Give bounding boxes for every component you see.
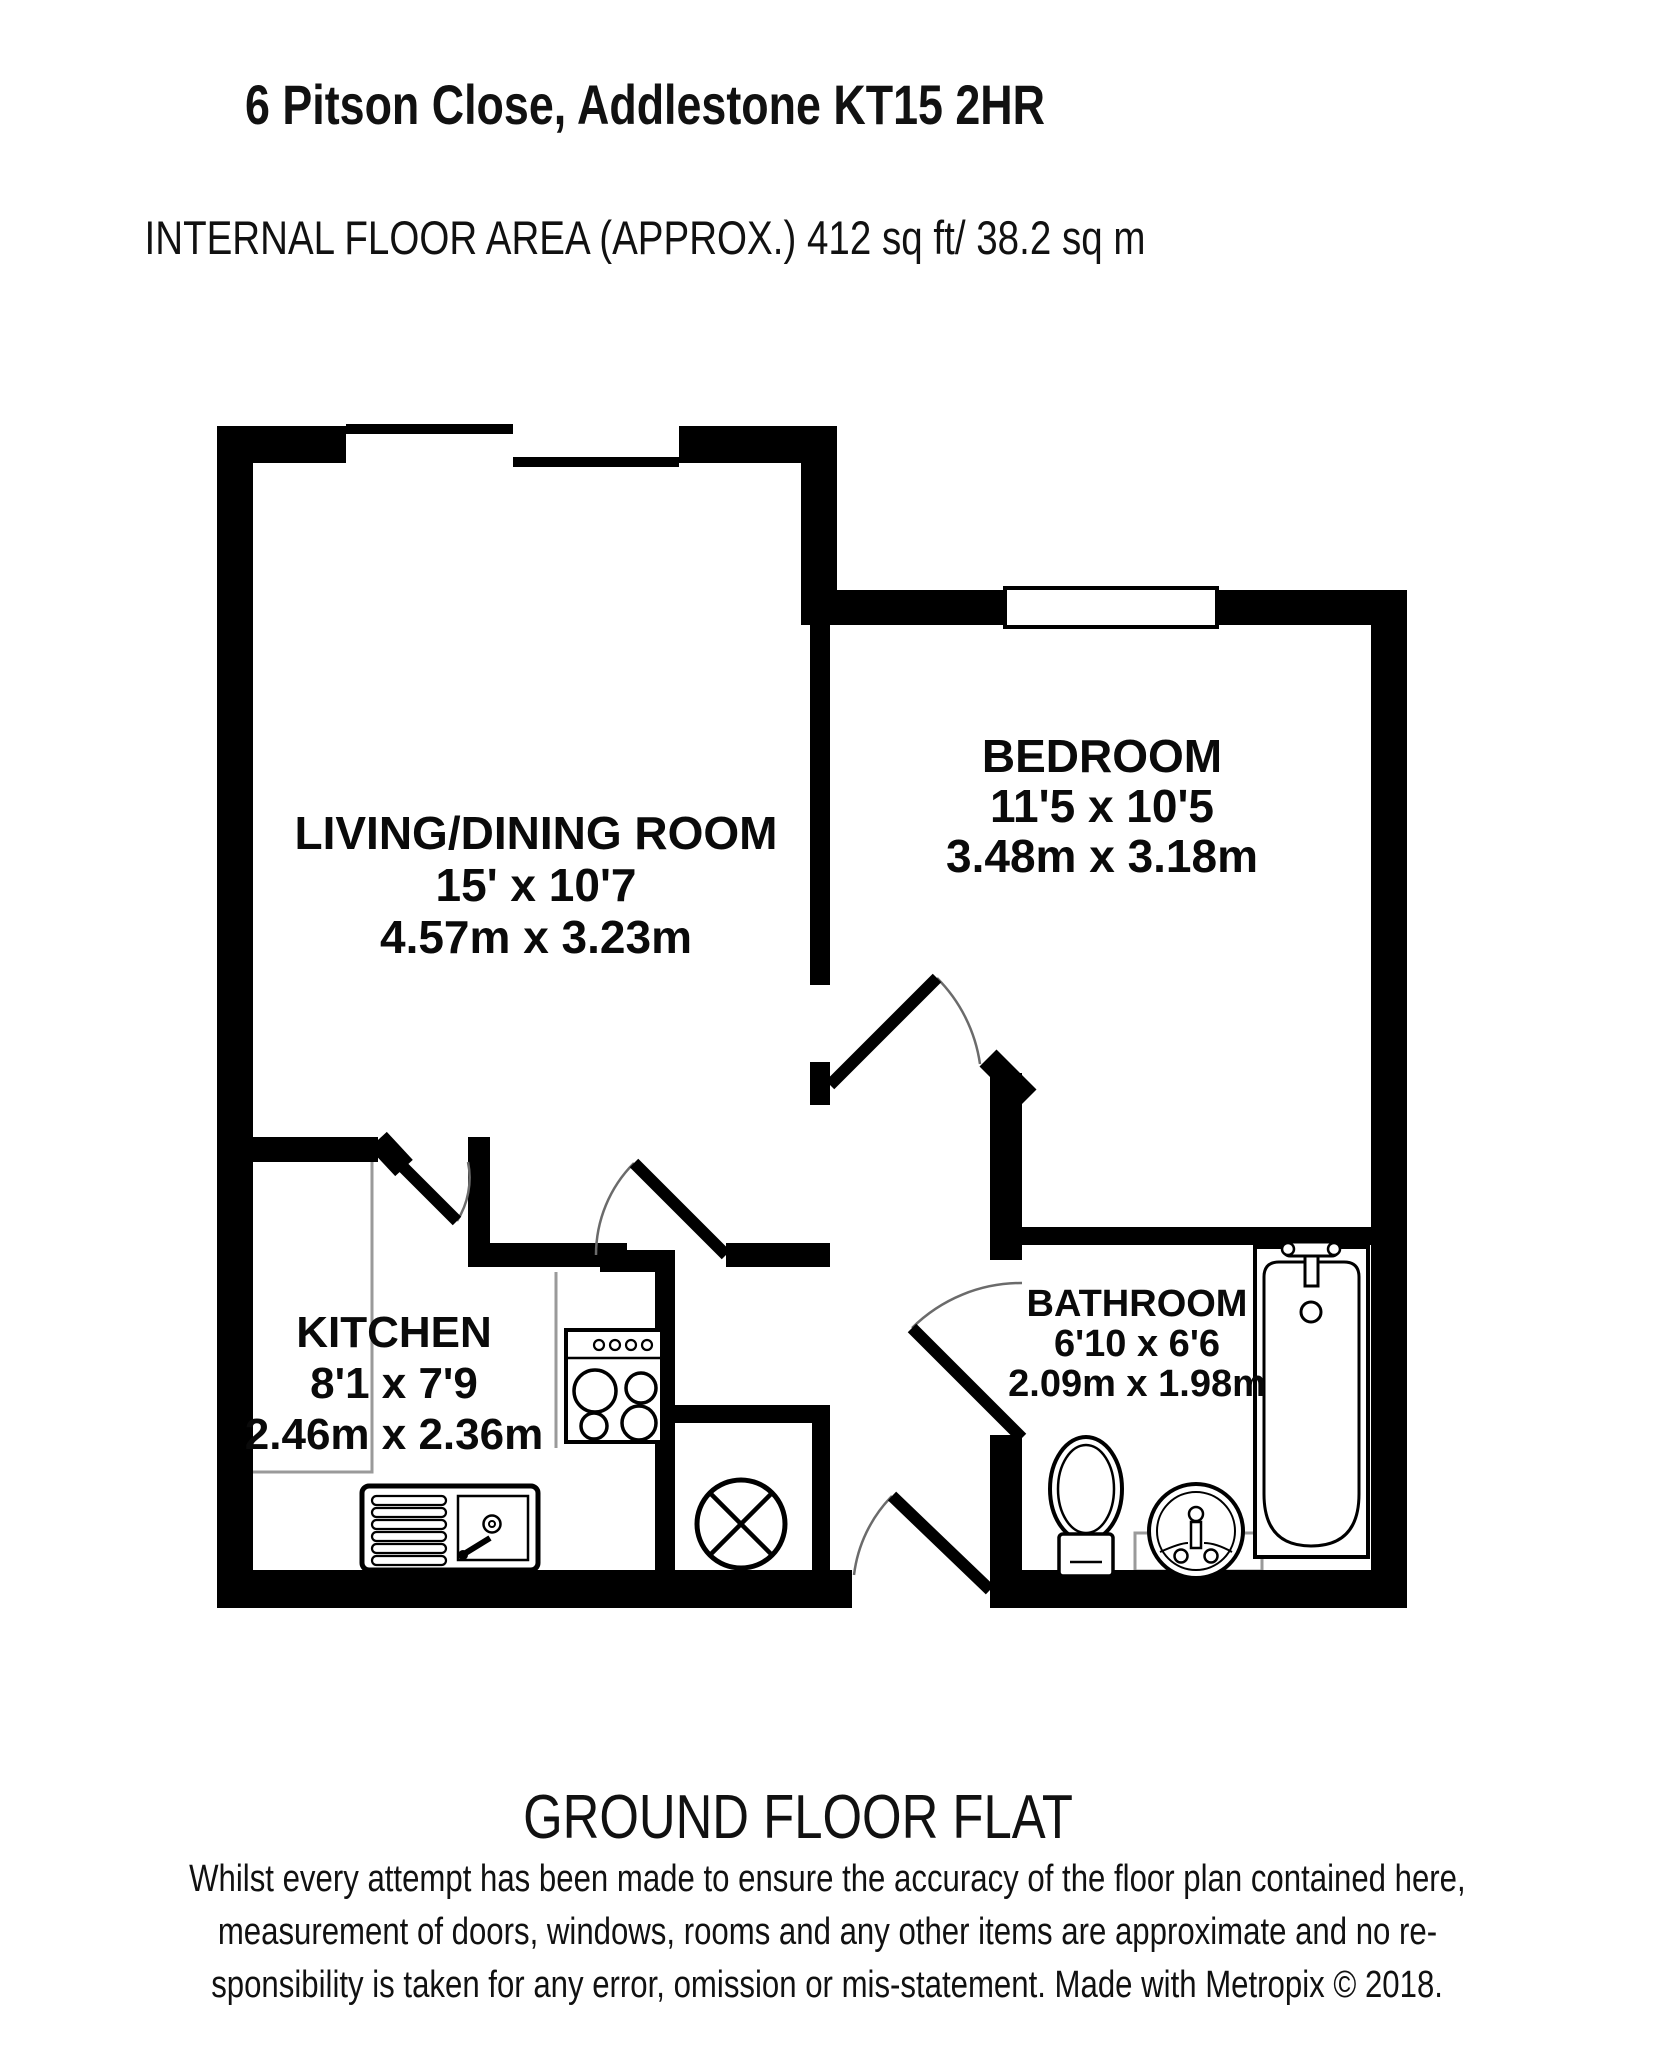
wall xyxy=(726,1243,830,1267)
door-leaf xyxy=(400,1164,457,1221)
wall xyxy=(217,1570,852,1608)
bathtub xyxy=(1255,1247,1368,1557)
room-dims-imperial: 8'1 x 7'9 xyxy=(245,1358,543,1409)
basin-tap xyxy=(1175,1550,1188,1563)
room-dims-imperial: 15' x 10'7 xyxy=(295,859,778,911)
room-dims-metric: 4.57m x 3.23m xyxy=(295,911,778,963)
door-leaf xyxy=(634,1163,726,1255)
room-name: LIVING/DINING ROOM xyxy=(295,807,778,859)
wall xyxy=(217,426,346,463)
room-label-bathroom: BATHROOM 6'10 x 6'6 2.09m x 1.98m xyxy=(1008,1284,1266,1404)
room-dims-metric: 3.48m x 3.18m xyxy=(946,831,1258,881)
room-name: BEDROOM xyxy=(946,731,1258,781)
wall xyxy=(1371,590,1407,1608)
room-label-bedroom: BEDROOM 11'5 x 10'5 3.48m x 3.18m xyxy=(946,731,1258,881)
basin-tap xyxy=(1191,1522,1201,1548)
disclaimer: Whilst every attempt has been made to en… xyxy=(0,1853,1654,2012)
wall xyxy=(679,426,837,463)
door-leaf xyxy=(830,978,937,1085)
wall xyxy=(801,590,1005,625)
floor-plan-drawing xyxy=(0,0,1654,2048)
door-arc xyxy=(912,1283,1022,1328)
bathtub-tap xyxy=(1305,1256,1318,1286)
door-arc xyxy=(596,1163,634,1255)
door-arc xyxy=(854,1496,892,1575)
wall-diagonal xyxy=(378,1140,404,1168)
toilet-bowl xyxy=(1050,1437,1122,1541)
wall xyxy=(253,1137,378,1162)
toilet-cistern xyxy=(1059,1534,1113,1576)
room-label-kitchen: KITCHEN 8'1 x 7'9 2.46m x 2.36m xyxy=(245,1307,543,1460)
room-dims-metric: 2.46m x 2.36m xyxy=(245,1409,543,1460)
wall xyxy=(810,625,830,985)
wall xyxy=(468,1137,490,1267)
disclaimer-line: measurement of doors, windows, rooms and… xyxy=(0,1906,1654,1959)
disclaimer-line: sponsibility is taken for any error, omi… xyxy=(0,1959,1654,2012)
floorplan-page: 6 Pitson Close, Addlestone KT15 2HR INTE… xyxy=(0,0,1654,2048)
disclaimer-line: Whilst every attempt has been made to en… xyxy=(0,1853,1654,1906)
sink-tap xyxy=(458,1550,468,1560)
room-name: BATHROOM xyxy=(1008,1284,1266,1324)
wall xyxy=(990,1435,1022,1570)
wall xyxy=(812,1405,830,1570)
room-name: KITCHEN xyxy=(245,1307,543,1358)
floor-name-text: GROUND FLOOR FLAT xyxy=(523,1782,1073,1853)
room-label-living-dining: LIVING/DINING ROOM 15' x 10'7 4.57m x 3.… xyxy=(295,807,778,963)
bathtub-tap xyxy=(1282,1243,1294,1255)
room-dims-metric: 2.09m x 1.98m xyxy=(1008,1364,1266,1404)
door-arc xyxy=(937,978,980,1064)
wall xyxy=(675,1405,830,1423)
wall xyxy=(810,1062,830,1105)
door-leaf xyxy=(892,1496,990,1590)
bathtub-tap xyxy=(1328,1243,1340,1255)
door-arc xyxy=(457,1162,470,1221)
window-sill xyxy=(513,457,679,467)
basin-tap xyxy=(1205,1550,1218,1563)
window-sill xyxy=(346,424,513,434)
bedroom-window xyxy=(1005,588,1217,627)
room-dims-imperial: 11'5 x 10'5 xyxy=(946,781,1258,831)
room-dims-imperial: 6'10 x 6'6 xyxy=(1008,1324,1266,1364)
basin-tap xyxy=(1189,1507,1203,1521)
door-leaf xyxy=(912,1328,1022,1438)
floor-name-label: GROUND FLOOR FLAT xyxy=(463,1782,1134,1853)
